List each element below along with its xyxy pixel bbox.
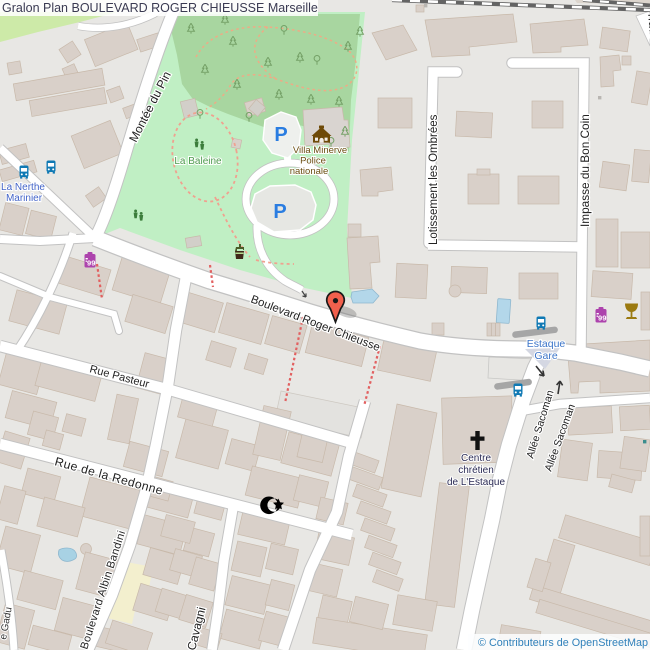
svg-text:Gralon Plan BOULEVARD ROGER CH: Gralon Plan BOULEVARD ROGER CHIEUSSE Mar… [2, 1, 318, 15]
svg-text:de L'Estaque: de L'Estaque [447, 477, 506, 488]
svg-text:chrétien: chrétien [458, 465, 494, 476]
svg-text:Impasse du Bon Coin: Impasse du Bon Coin [578, 114, 592, 227]
svg-text:Estaque: Estaque [527, 338, 566, 350]
svg-text:La Baleine: La Baleine [174, 156, 222, 167]
svg-text:© Contributeurs de OpenStreetM: © Contributeurs de OpenStreetMap [478, 637, 648, 649]
svg-text:nationale: nationale [290, 166, 329, 177]
svg-text:Marinier: Marinier [6, 193, 43, 204]
svg-text:P: P [274, 124, 287, 146]
svg-text:P: P [273, 201, 286, 223]
svg-text:La Nerthe: La Nerthe [1, 182, 45, 193]
svg-text:Police: Police [300, 156, 326, 167]
svg-text:Gare: Gare [534, 350, 558, 362]
svg-text:Lotissement les Ombrées: Lotissement les Ombrées [428, 114, 440, 245]
svg-text:Centre: Centre [461, 453, 491, 464]
svg-text:Villa Minerve: Villa Minerve [293, 145, 347, 156]
